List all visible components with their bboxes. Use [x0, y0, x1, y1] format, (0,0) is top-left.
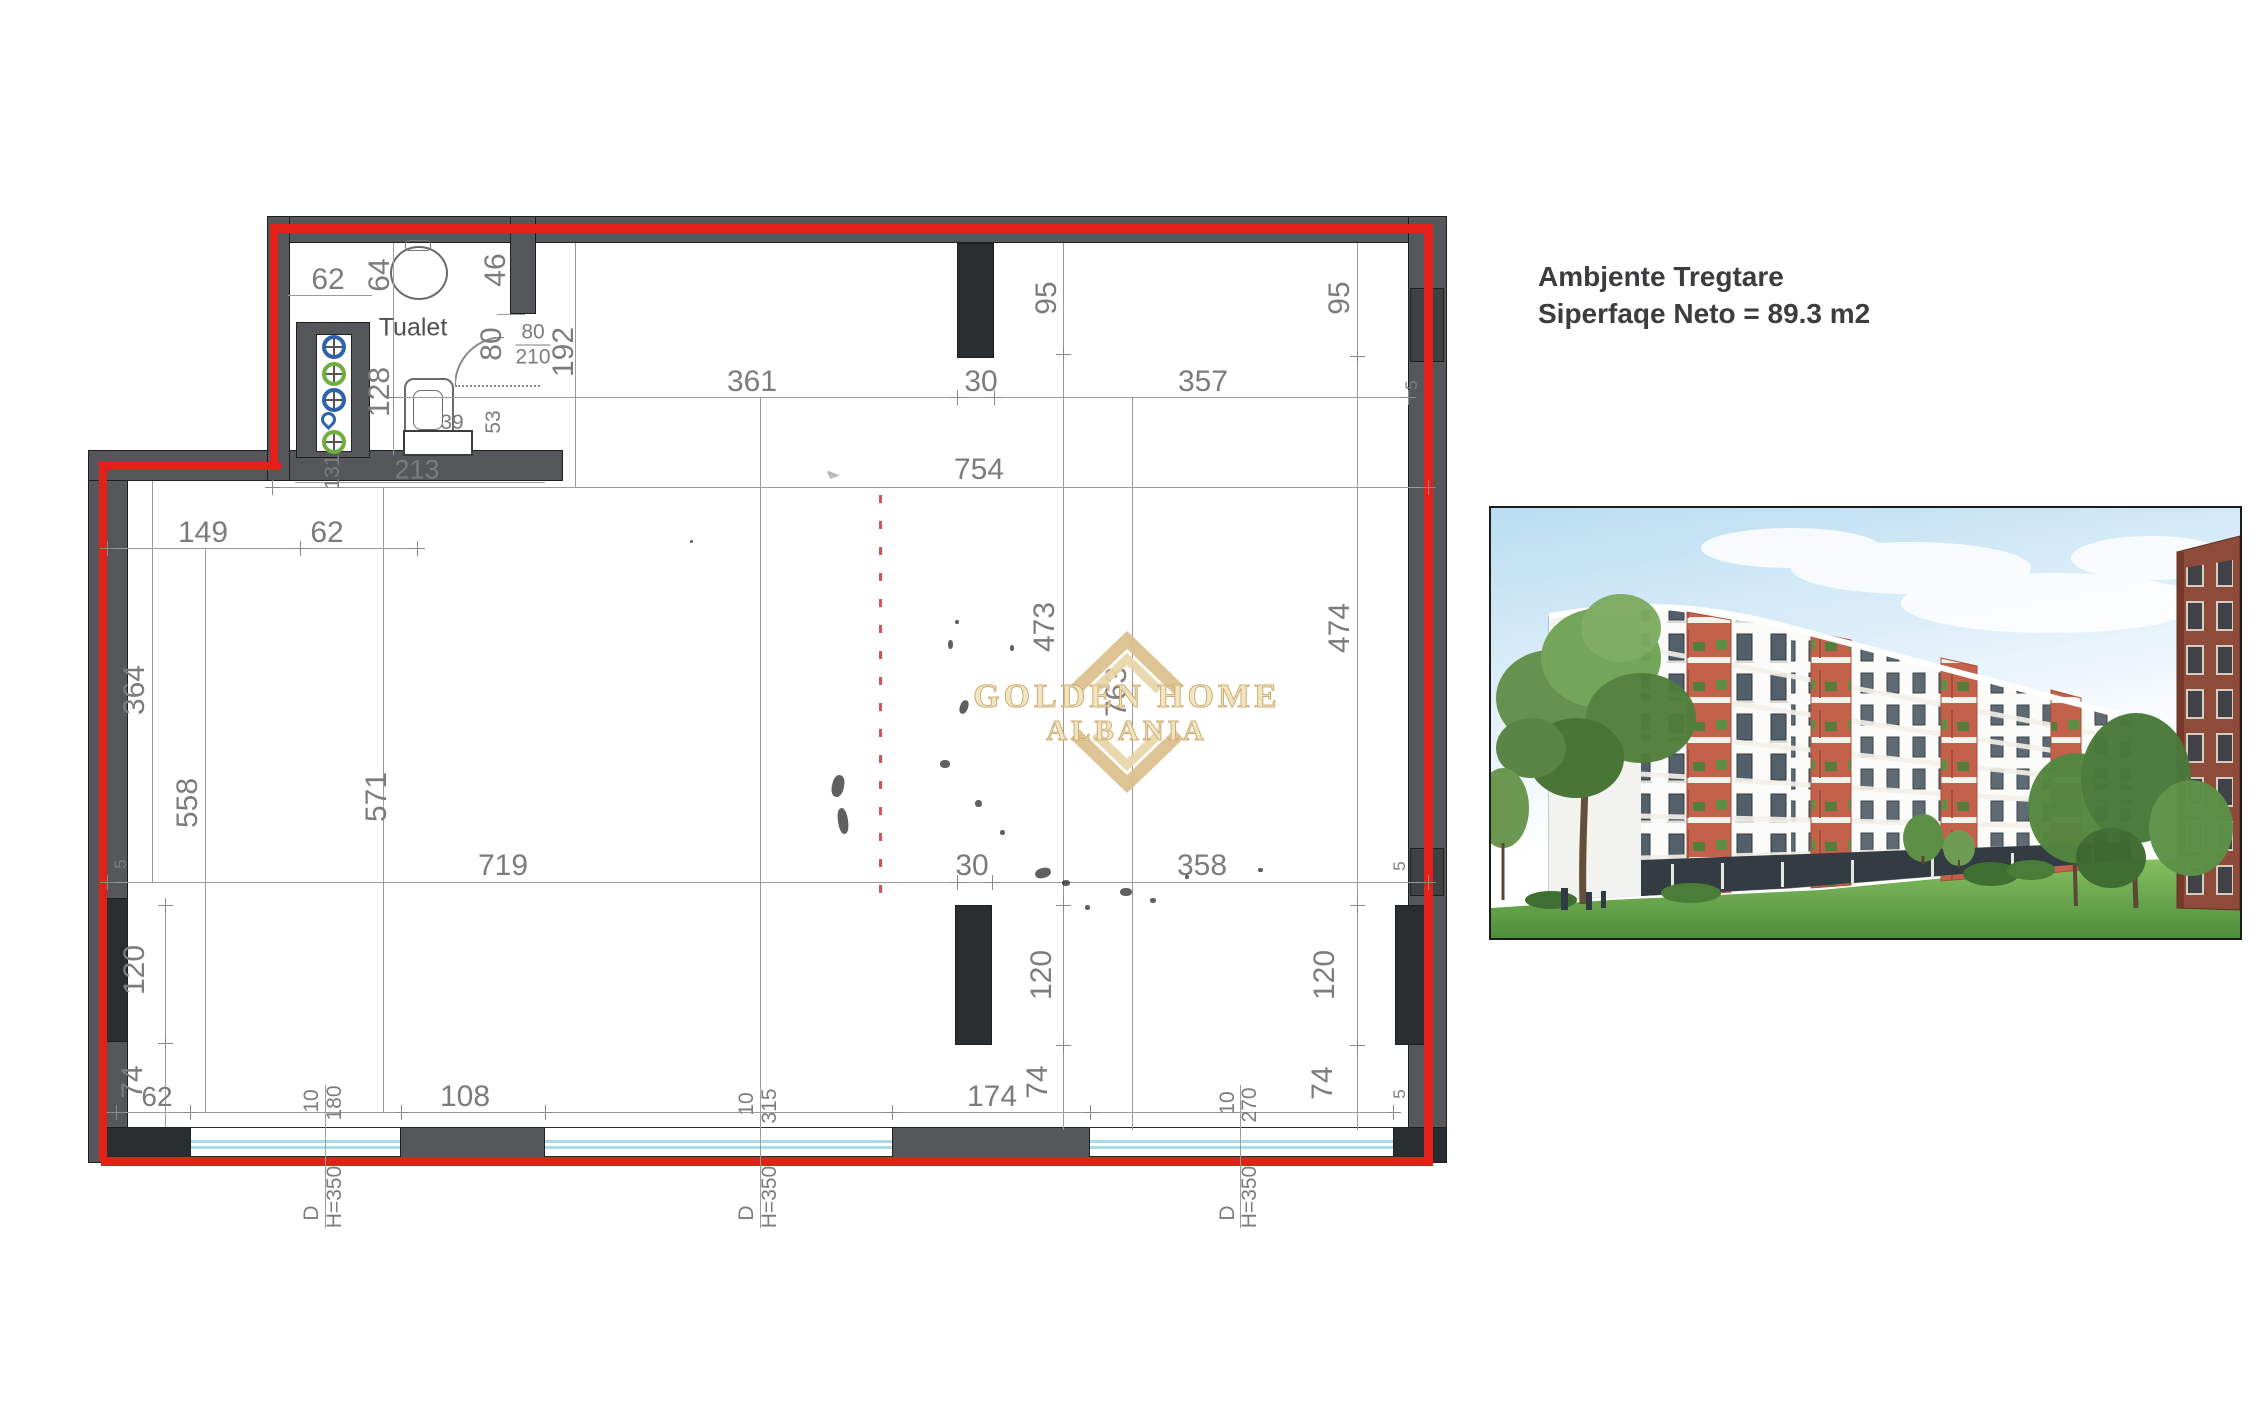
witness-line [1357, 243, 1358, 1130]
scan-speck [836, 807, 850, 834]
window-b-sill: 10 [735, 1092, 759, 1115]
dim-side-5a: 5 [1402, 380, 1422, 389]
dim-top-95-right: 95 [1323, 281, 1357, 314]
dim-toilet-53: 53 [482, 410, 506, 433]
window-a [191, 1127, 400, 1157]
scan-speck [940, 760, 950, 768]
dim-left-558: 558 [171, 778, 205, 828]
dim-bl-108: 108 [440, 1080, 490, 1114]
dim-toilet-46: 46 [479, 253, 513, 286]
wall-bottom-seg2 [892, 1127, 1090, 1158]
door-tag-h-2: H=350 [758, 1166, 782, 1228]
dim-door-width: 80 [515, 321, 550, 346]
door-tag-h-3: H=350 [1238, 1166, 1262, 1228]
scan-speck [1062, 880, 1070, 886]
dim-side-5b: 5 [1390, 861, 1410, 870]
dim-bl-62: 62 [141, 1081, 172, 1113]
dim-line [393, 397, 1408, 398]
dim-tick [1056, 1038, 1071, 1053]
dim-left-149: 149 [178, 516, 228, 550]
window-b [545, 1127, 892, 1157]
scan-speck [1120, 888, 1132, 896]
dim-toilet-80: 80 [475, 327, 509, 360]
scan-speck [1185, 875, 1189, 879]
dim-tick [1421, 875, 1436, 890]
column-top-middle [957, 243, 994, 358]
dim-tick [1350, 898, 1365, 913]
dim-shaft-131: 131 [321, 454, 345, 489]
dim-tick [1056, 898, 1071, 913]
scan-speck [1034, 866, 1052, 880]
boundary-right [1424, 224, 1433, 1163]
dim-mid-474: 474 [1323, 603, 1357, 653]
riser-icon [322, 335, 346, 359]
dim-toilet-128: 128 [363, 367, 397, 417]
door-tag-d-2: D [735, 1205, 759, 1220]
boundary-left [99, 462, 107, 1162]
scan-speck [830, 774, 846, 798]
dim-toilet-39: 39 [440, 411, 463, 435]
boundary-toilet-left [270, 224, 278, 470]
window-b-width: 315 [758, 1088, 782, 1123]
dim-tick [109, 1105, 124, 1120]
toilet-bowl-inner [413, 390, 443, 430]
dim-tick [950, 390, 965, 405]
riser-icon [322, 430, 346, 454]
dim-side-5c: 5 [1390, 1089, 1410, 1098]
boundary-step [99, 462, 281, 470]
scan-speck [948, 640, 953, 649]
sink-tap [405, 240, 431, 251]
dim-toilet-213: 213 [394, 455, 439, 486]
dim-door-size: 80 210 [515, 321, 550, 370]
window-c-sill: 10 [1216, 1091, 1240, 1114]
dim-bm-174: 174 [967, 1080, 1017, 1114]
dim-br-120: 120 [1308, 950, 1342, 1000]
wall-left [88, 450, 128, 1163]
dim-top-95-left: 95 [1030, 281, 1064, 314]
dim-left-364: 364 [118, 665, 152, 715]
witness-line [205, 548, 206, 1112]
witness-line [152, 481, 153, 882]
scan-speck [690, 540, 693, 543]
dim-tick [1350, 1038, 1365, 1053]
dim-side-5d: 5 [111, 859, 131, 868]
dim-toilet-192: 192 [547, 327, 581, 377]
dim-door-height: 210 [515, 346, 550, 369]
dim-tick [158, 898, 173, 913]
boundary-bottom [101, 1157, 1433, 1166]
scan-speck [1258, 868, 1263, 872]
scan-speck [1150, 898, 1156, 903]
building-photo [1489, 506, 2242, 940]
watermark-line2: ALBANIA [1046, 715, 1208, 747]
watermark-line1: GOLDEN HOME [973, 678, 1281, 715]
window-c [1090, 1127, 1393, 1157]
scan-smudge-arrow [826, 470, 840, 479]
dim-line [497, 314, 525, 315]
dim-tick [1421, 480, 1436, 495]
dim-tick [410, 541, 425, 556]
dim-line [107, 882, 1429, 883]
dim-bl-120: 120 [118, 945, 152, 995]
dim-tick [158, 1036, 173, 1051]
dim-mid-719: 719 [478, 849, 528, 883]
dim-br-74: 74 [1306, 1066, 1340, 1099]
scan-speck [1085, 905, 1090, 910]
dim-tick [394, 1105, 409, 1120]
window-a-width: 180 [323, 1085, 347, 1120]
dim-top-30: 30 [964, 365, 997, 399]
window-a-sill: 10 [300, 1089, 324, 1112]
dim-tick [538, 1105, 553, 1120]
dim-tick [100, 875, 115, 890]
door-tag-d-3: D [1216, 1205, 1240, 1220]
dim-toilet-64: 64 [363, 258, 397, 291]
sink [390, 246, 448, 300]
dim-tick [1056, 347, 1071, 362]
dim-tick [183, 1105, 198, 1120]
title-line1: Ambjente Tregtare [1538, 258, 1870, 295]
wall-bottom-corner-left [101, 1127, 191, 1158]
floor-plan-sheet: Tualet 62 64 46 128 80 80 210 192 39 53 … [0, 0, 2260, 1415]
dim-mid-30: 30 [955, 849, 988, 883]
scan-speck [1000, 830, 1005, 835]
dim-tick [100, 541, 115, 556]
riser-icon [322, 362, 346, 386]
sheet-title: Ambjente Tregtare Siperfaqe Neto = 89.3 … [1538, 258, 1870, 332]
dim-tick [293, 541, 308, 556]
door-tag-d-1: D [300, 1205, 324, 1220]
dim-tick [1350, 349, 1365, 364]
dim-tick [1386, 1105, 1401, 1120]
window-c-width: 270 [1238, 1087, 1262, 1122]
dim-toilet-62: 62 [311, 263, 344, 297]
dim-tick [265, 480, 280, 495]
dim-top-754: 754 [954, 453, 1004, 487]
door-tag-h-1: H=350 [323, 1166, 347, 1228]
door-leaf [455, 385, 540, 387]
dim-tick [1401, 390, 1416, 405]
dim-left-571: 571 [360, 772, 394, 822]
dim-left-62: 62 [310, 516, 343, 550]
dim-top-361: 361 [727, 365, 777, 399]
boundary-top [272, 224, 1433, 233]
golden-home-watermark: GOLDEN HOME ALBANIA [957, 612, 1297, 802]
wall-bottom-seg1 [400, 1127, 545, 1158]
room-label: Tualet [379, 314, 448, 343]
red-scan-line [879, 495, 882, 905]
dim-top-357: 357 [1178, 365, 1228, 399]
dim-bm-120: 120 [1025, 950, 1059, 1000]
dim-line [107, 548, 419, 549]
column-bottom-middle [955, 905, 992, 1045]
title-line2: Siperfaqe Neto = 89.3 m2 [1538, 295, 1870, 332]
dim-bm-74: 74 [1021, 1065, 1055, 1098]
riser-icon [322, 388, 346, 412]
dim-line [270, 487, 1432, 488]
dim-tick [1083, 1105, 1098, 1120]
dim-tick [885, 1105, 900, 1120]
